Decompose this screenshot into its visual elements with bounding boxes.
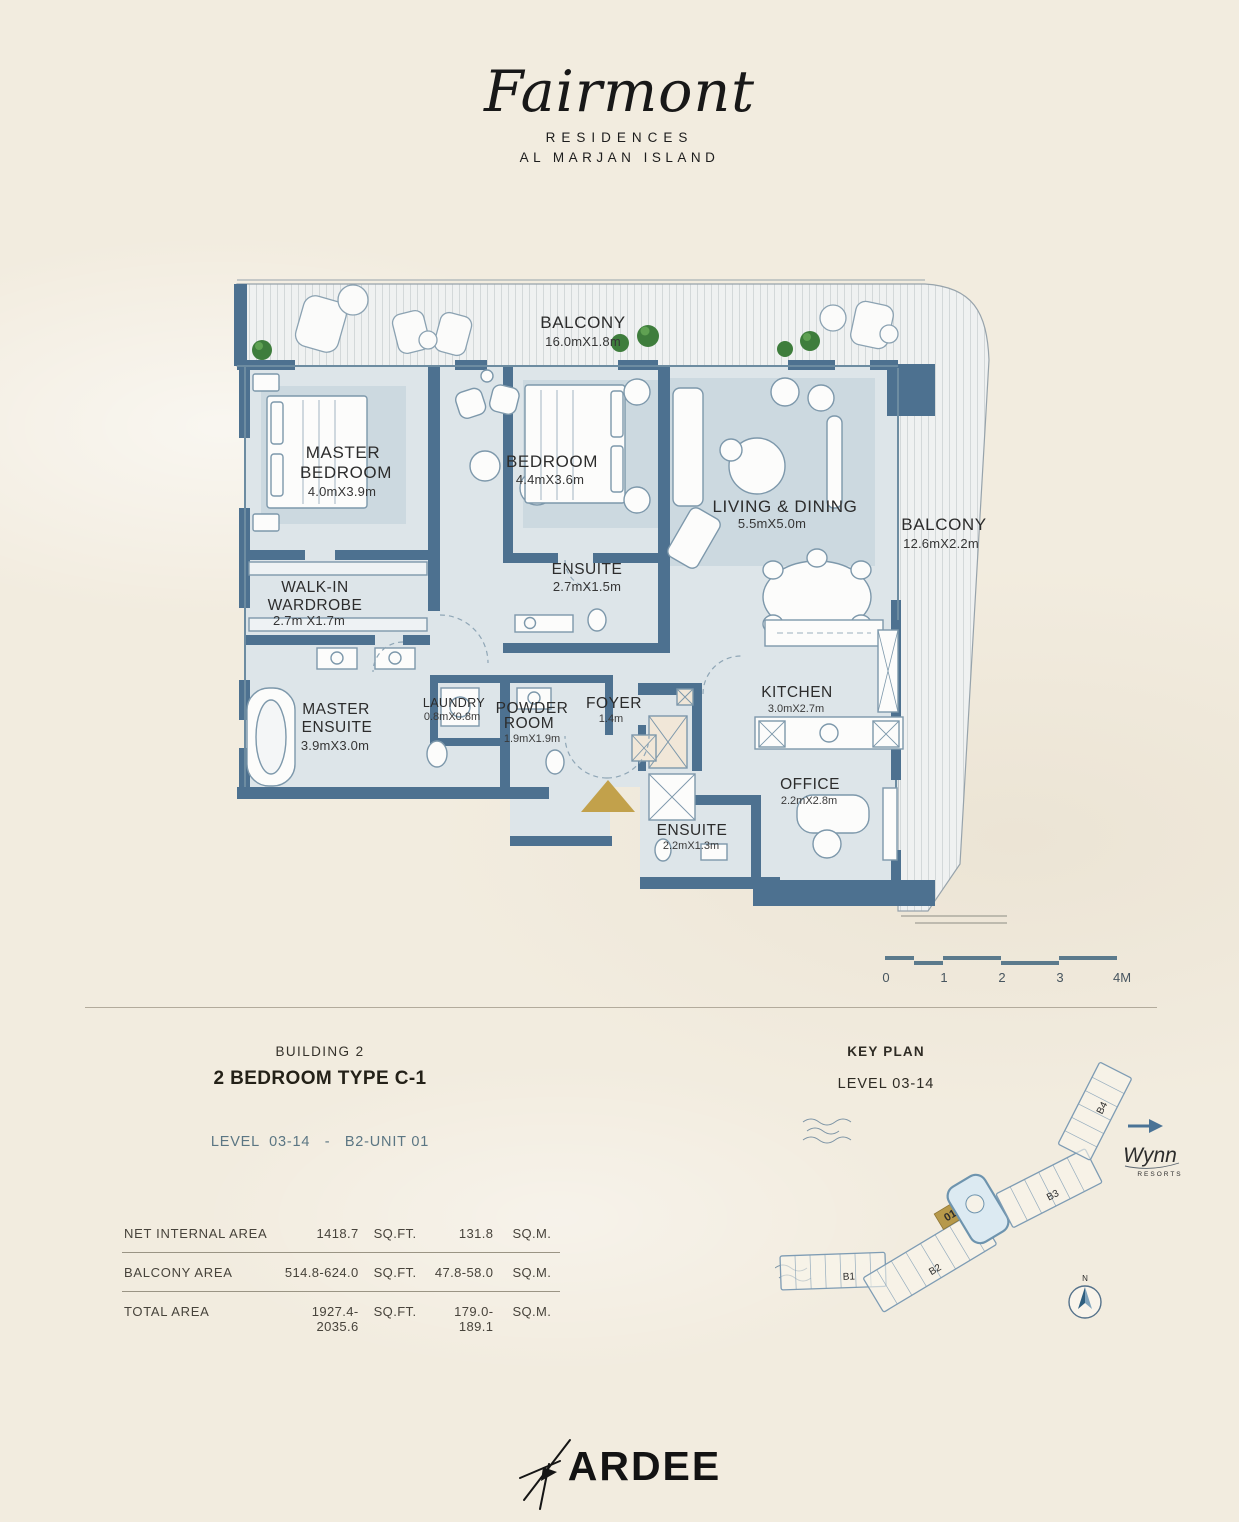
arrow-right-icon [1149, 1119, 1163, 1133]
area-sqft-unit: SQ.FT. [359, 1304, 423, 1319]
scale-bar: 0 1 2 3 4M [878, 948, 1140, 990]
key-plan-title: KEY PLAN [776, 1044, 996, 1059]
scale-label: 3 [1056, 970, 1063, 985]
svg-text:ENSUITE: ENSUITE [552, 561, 623, 578]
area-sqft-value: 1418.7 [274, 1226, 358, 1241]
scale-segment [914, 961, 943, 965]
svg-text:2.2mX2.8m: 2.2mX2.8m [781, 795, 837, 807]
scale-label: 1 [940, 970, 947, 985]
svg-text:12.6mX2.2m: 12.6mX2.2m [903, 536, 979, 551]
svg-text:ENSUITE: ENSUITE [657, 822, 728, 839]
area-row-label: NET INTERNAL AREA [124, 1226, 274, 1241]
svg-text:OFFICE: OFFICE [780, 776, 840, 793]
brand-block: Fairmont RESIDENCES AL MARJAN ISLAND [0, 64, 1239, 165]
svg-text:MASTER: MASTER [302, 701, 370, 718]
floorplan-svg: BALCONY 16.0mX1.8m MASTER BEDROOM 4.0mX3… [225, 270, 1015, 942]
sparkle-star-icon [518, 1434, 576, 1510]
balcony-bottom-lines [901, 916, 1007, 923]
svg-text:BALCONY: BALCONY [901, 515, 986, 534]
brand-logo: Fairmont [0, 64, 1239, 121]
compass-north-label: N [1082, 1274, 1088, 1283]
table-row: NET INTERNAL AREA 1418.7 SQ.FT. 131.8 SQ… [122, 1214, 560, 1252]
svg-text:3.9mX3.0m: 3.9mX3.0m [301, 738, 369, 753]
area-sqm-value: 47.8-58.0 [423, 1265, 494, 1280]
room-label-balcony-top: BALCONY 16.0mX1.8m [540, 313, 625, 349]
svg-text:LIVING & DINING: LIVING & DINING [712, 497, 857, 516]
section-divider [85, 1007, 1157, 1008]
svg-text:WALK-IN: WALK-IN [281, 579, 349, 596]
scale-label: 2 [998, 970, 1005, 985]
area-sqm-value: 179.0-189.1 [423, 1304, 494, 1334]
footer: ARDEE [0, 1428, 1239, 1504]
scale-label: 4M [1113, 970, 1131, 985]
svg-text:BEDROOM: BEDROOM [300, 463, 392, 482]
svg-text:2.7m X1.7m: 2.7m X1.7m [273, 613, 345, 628]
unit-type-title: 2 BEDROOM TYPE C-1 [188, 1068, 452, 1090]
area-sqft-value: 1927.4-2035.6 [274, 1304, 358, 1334]
room-label-balcony-right: BALCONY 12.6mX2.2m [901, 515, 986, 551]
svg-text:KITCHEN: KITCHEN [761, 684, 833, 701]
svg-text:FOYER: FOYER [586, 695, 642, 712]
table-row: BALCONY AREA 514.8-624.0 SQ.FT. 47.8-58.… [122, 1252, 560, 1291]
compass-icon: N [1069, 1274, 1101, 1318]
svg-text:Wynn: Wynn [1123, 1144, 1177, 1167]
svg-text:4.0mX3.9m: 4.0mX3.9m [308, 484, 376, 499]
room-label-master-ensuite: MASTER ENSUITE 3.9mX3.0m [301, 701, 372, 753]
svg-text:ENSUITE: ENSUITE [302, 719, 373, 736]
svg-text:0.8mX0.8m: 0.8mX0.8m [424, 711, 480, 723]
area-sqm-value: 131.8 [423, 1226, 494, 1241]
area-row-label: TOTAL AREA [124, 1304, 274, 1319]
developer-logo: ARDEE [568, 1443, 722, 1490]
area-sqft-value: 514.8-624.0 [274, 1265, 358, 1280]
room-label-bedroom-ensuite: ENSUITE 2.7mX1.5m [552, 561, 623, 594]
svg-text:1.9mX1.9m: 1.9mX1.9m [504, 733, 560, 745]
building-b4: B4 [1058, 1062, 1132, 1160]
svg-text:4.4mX3.6m: 4.4mX3.6m [516, 472, 584, 487]
area-sqft-unit: SQ.FT. [359, 1226, 423, 1241]
unit-info: BUILDING 2 2 BEDROOM TYPE C-1 LEVEL 03-1… [188, 1044, 452, 1150]
scale-segment [1059, 956, 1117, 960]
area-sqft-unit: SQ.FT. [359, 1265, 423, 1280]
room-label-laundry: LAUNDRY 0.8mX0.8m [423, 696, 486, 723]
building-label: BUILDING 2 [188, 1044, 452, 1059]
scale-segment [885, 956, 914, 960]
room-label-office: OFFICE 2.2mX2.8m [780, 776, 840, 807]
scale-segment [1001, 961, 1059, 965]
scale-label: 0 [882, 970, 889, 985]
area-sqm-unit: SQ.M. [493, 1226, 558, 1241]
area-sqm-unit: SQ.M. [493, 1265, 558, 1280]
table-row: TOTAL AREA 1927.4-2035.6 SQ.FT. 179.0-18… [122, 1291, 560, 1345]
wynn-logo: Wynn RESORTS [1123, 1119, 1183, 1178]
floorplan-poster: Fairmont RESIDENCES AL MARJAN ISLAND [0, 0, 1239, 1522]
svg-text:RESORTS: RESORTS [1137, 1171, 1182, 1178]
area-sqm-unit: SQ.M. [493, 1304, 558, 1319]
svg-text:1.4m: 1.4m [599, 713, 623, 725]
svg-text:BALCONY: BALCONY [540, 313, 625, 332]
svg-text:WARDROBE: WARDROBE [268, 597, 363, 614]
svg-text:16.0mX1.8m: 16.0mX1.8m [545, 334, 621, 349]
building-b3: B3 [996, 1149, 1102, 1228]
svg-text:2.2mX1.3m: 2.2mX1.3m [663, 840, 719, 852]
level-unit-label: LEVEL 03-14 - B2-UNIT 01 [188, 1134, 452, 1150]
svg-text:2.7mX1.5m: 2.7mX1.5m [553, 579, 621, 594]
svg-text:BEDROOM: BEDROOM [506, 452, 598, 471]
site-map-svg: B1 B2 01 B3 B4 [775, 1060, 1205, 1340]
svg-text:5.5mX5.0m: 5.5mX5.0m [738, 516, 806, 531]
brand-residences: RESIDENCES [0, 130, 1239, 145]
room-label-kitchen: KITCHEN 3.0mX2.7m [761, 684, 833, 715]
room-label-office-ensuite: ENSUITE 2.2mX1.3m [657, 822, 728, 852]
area-table: NET INTERNAL AREA 1418.7 SQ.FT. 131.8 SQ… [122, 1214, 560, 1345]
scale-segment [943, 956, 1001, 960]
brand-location: AL MARJAN ISLAND [0, 150, 1239, 165]
svg-text:LAUNDRY: LAUNDRY [423, 696, 486, 710]
area-row-label: BALCONY AREA [124, 1265, 274, 1280]
svg-text:ROOM: ROOM [504, 715, 554, 732]
building-b1-label: B1 [843, 1271, 856, 1282]
svg-text:3.0mX2.7m: 3.0mX2.7m [768, 703, 824, 715]
svg-text:MASTER: MASTER [306, 443, 380, 462]
